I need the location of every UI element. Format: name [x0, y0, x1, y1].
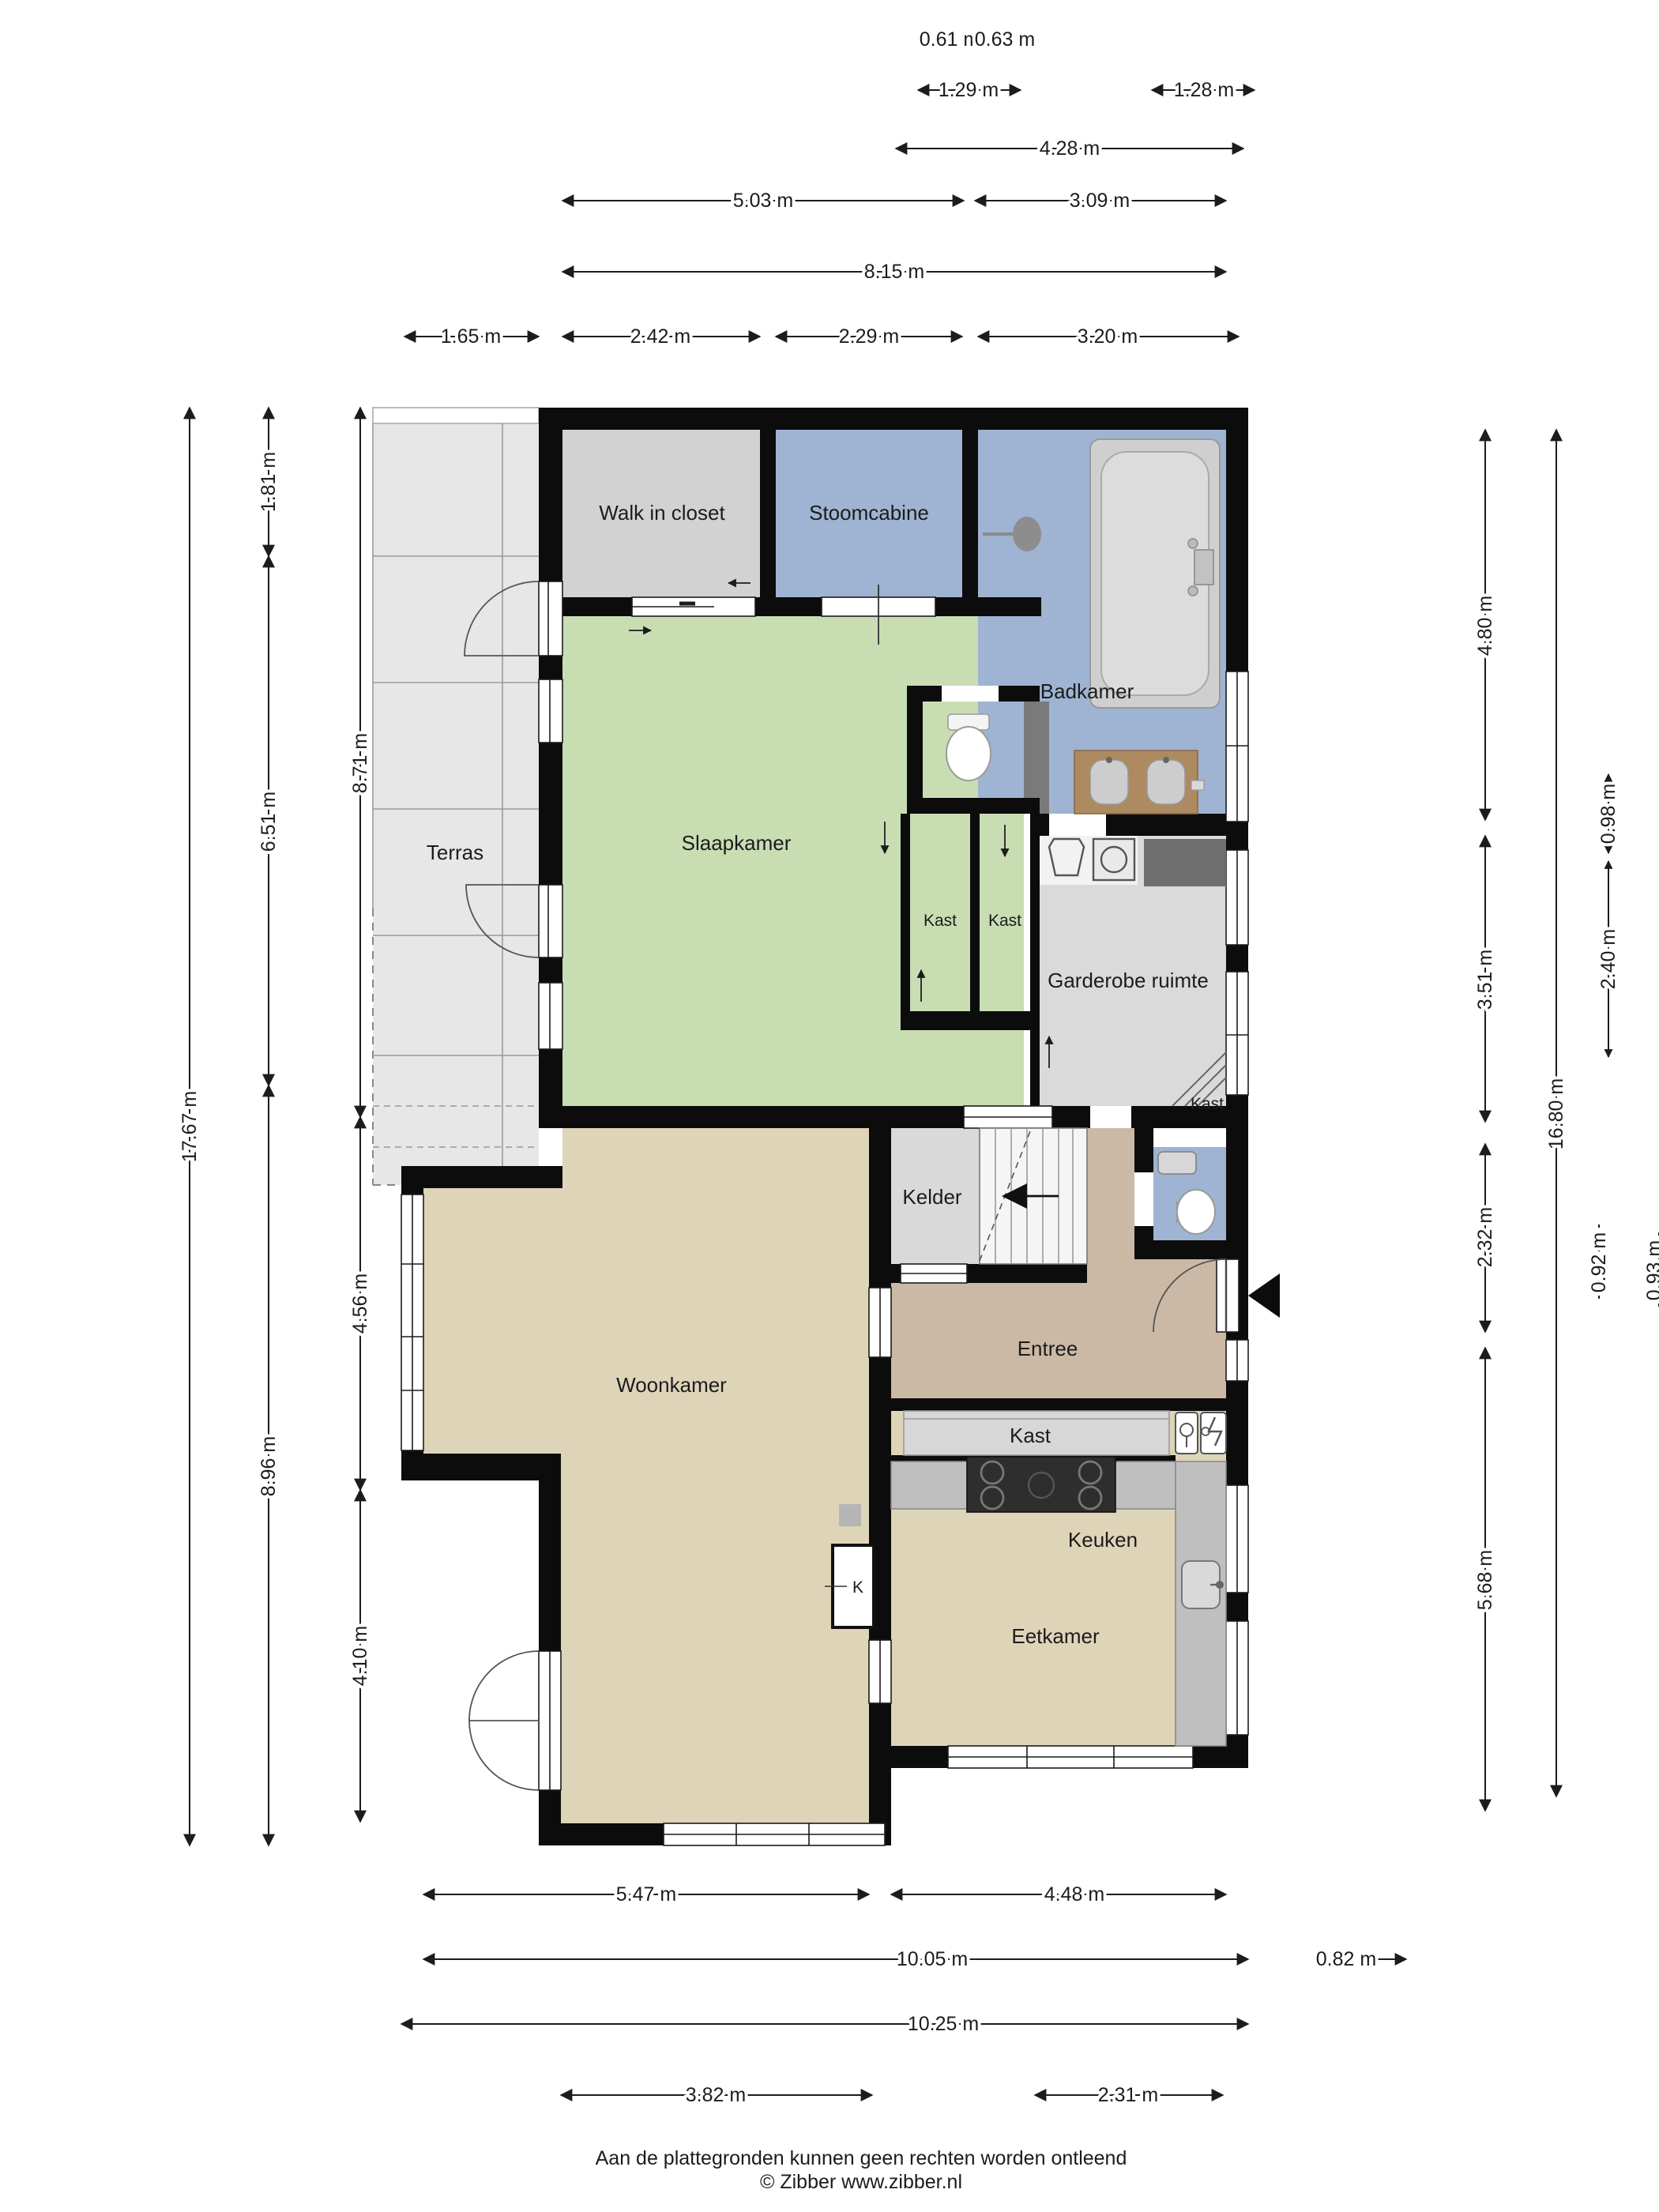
- slaapkamer-label: Slaapkamer: [682, 831, 792, 855]
- footer: Aan de plattegronden kunnen geen rechten…: [596, 2147, 1127, 2193]
- entree-kast-label: Kast: [1010, 1424, 1051, 1447]
- dim-428: 4.28 m: [1040, 137, 1100, 160]
- kast2-label: Kast: [988, 912, 1021, 930]
- dim-082: 0.82 m: [1316, 1948, 1376, 1970]
- dim-503: 5.03 m: [733, 190, 793, 212]
- dim-061: 0.61 m: [920, 28, 980, 51]
- bathtub-icon: [1090, 439, 1220, 708]
- stairs-icon: [980, 1128, 1087, 1264]
- footer-disclaimer: Aan de plattegronden kunnen geen rechten…: [596, 2147, 1127, 2169]
- dim-128: 1.28 m: [1174, 79, 1234, 101]
- dim-129: 1.29 m: [939, 79, 999, 101]
- dim-093: 0.93 m: [1643, 1240, 1659, 1300]
- terras-label: Terras: [427, 841, 483, 864]
- dim-309: 3.09 m: [1070, 190, 1130, 212]
- dimensions-top: 0.61 m 0.63 m 1.29 m 1.28 m 4.28 m 5.03 …: [404, 28, 1255, 348]
- dark-cabinet: [1144, 839, 1226, 886]
- dim-320: 3.20 m: [1078, 325, 1138, 348]
- dimensions-left: 17.67 m 1.81 m 6.51 m 8.96 m 8.71 m 4.56…: [179, 408, 371, 1845]
- eetkamer-label: Eetkamer: [1011, 1624, 1100, 1648]
- entree-label: Entree: [1018, 1337, 1078, 1360]
- dim-1005: 10.05 m: [897, 1948, 968, 1970]
- dim-165: 1.65 m: [441, 325, 501, 348]
- walk-in-closet-label: Walk in closet: [599, 501, 725, 525]
- dim-410: 4.10 m: [349, 1626, 371, 1686]
- dim-871: 8.71 m: [349, 733, 371, 793]
- floorplan-canvas: Terras: [0, 0, 1659, 2212]
- dim-448: 4.48 m: [1044, 1883, 1104, 1905]
- toilet-upper-icon: [946, 714, 991, 781]
- double-washbasin-icon: [1074, 750, 1204, 814]
- dim-480: 4.80 m: [1474, 596, 1496, 656]
- woonkamer-label: Woonkamer: [616, 1373, 727, 1397]
- dim-351: 3.51 m: [1474, 950, 1496, 1010]
- stoomcabine-label: Stoomcabine: [809, 501, 929, 525]
- dim-651: 6.51 m: [258, 792, 280, 852]
- corner-kast-label: Kast: [1191, 1095, 1224, 1113]
- entree-kast: [904, 1411, 1226, 1455]
- dim-240: 2.40 m: [1597, 929, 1619, 989]
- badkamer-label: Badkamer: [1040, 679, 1134, 703]
- washing-machine-icon: [1093, 839, 1134, 880]
- garderobe-label: Garderobe ruimte: [1048, 969, 1209, 992]
- dim-229: 2.29 m: [839, 325, 899, 348]
- dim-181: 1.81 m: [258, 452, 280, 512]
- kast1-label: Kast: [924, 912, 957, 930]
- dim-1680: 16.80 m: [1545, 1078, 1567, 1149]
- dimensions-bottom: 5.47 m 4.48 m 10.05 m 0.82 m 10.25 m 3.8…: [401, 1883, 1406, 2106]
- k-closet-label: K: [852, 1578, 863, 1597]
- keuken-label: Keuken: [1068, 1528, 1138, 1552]
- dim-092: 0.92 m: [1588, 1232, 1610, 1292]
- dim-456: 4.56 m: [349, 1273, 371, 1334]
- dim-382: 3.82 m: [686, 2084, 746, 2106]
- dim-242: 2.42 m: [630, 325, 690, 348]
- dim-063: 0.63 m: [975, 28, 1035, 51]
- dim-1767: 17.67 m: [179, 1091, 201, 1162]
- stove-icon: [967, 1457, 1115, 1512]
- dim-1025: 10.25 m: [908, 2013, 979, 2035]
- kelder-label: Kelder: [902, 1185, 961, 1209]
- terras-deck: Terras: [373, 408, 539, 1185]
- footer-credit: © Zibber www.zibber.nl: [760, 2171, 962, 2193]
- dim-098: 0.98 m: [1597, 784, 1619, 844]
- dim-815: 8.15 m: [864, 261, 924, 283]
- sink-icon: [1182, 1561, 1224, 1608]
- dim-896: 8.96 m: [258, 1436, 280, 1496]
- dim-232: 2.32 m: [1474, 1207, 1496, 1267]
- dimensions-right: 4.80 m 3.51 m 2.32 m 5.68 m 16.80 m 0.98…: [1474, 430, 1659, 1811]
- entrance-arrow-icon: [1248, 1273, 1280, 1318]
- dim-568: 5.68 m: [1474, 1550, 1496, 1610]
- dim-547: 5.47 m: [616, 1883, 676, 1905]
- dim-231: 2.31 m: [1098, 2084, 1158, 2106]
